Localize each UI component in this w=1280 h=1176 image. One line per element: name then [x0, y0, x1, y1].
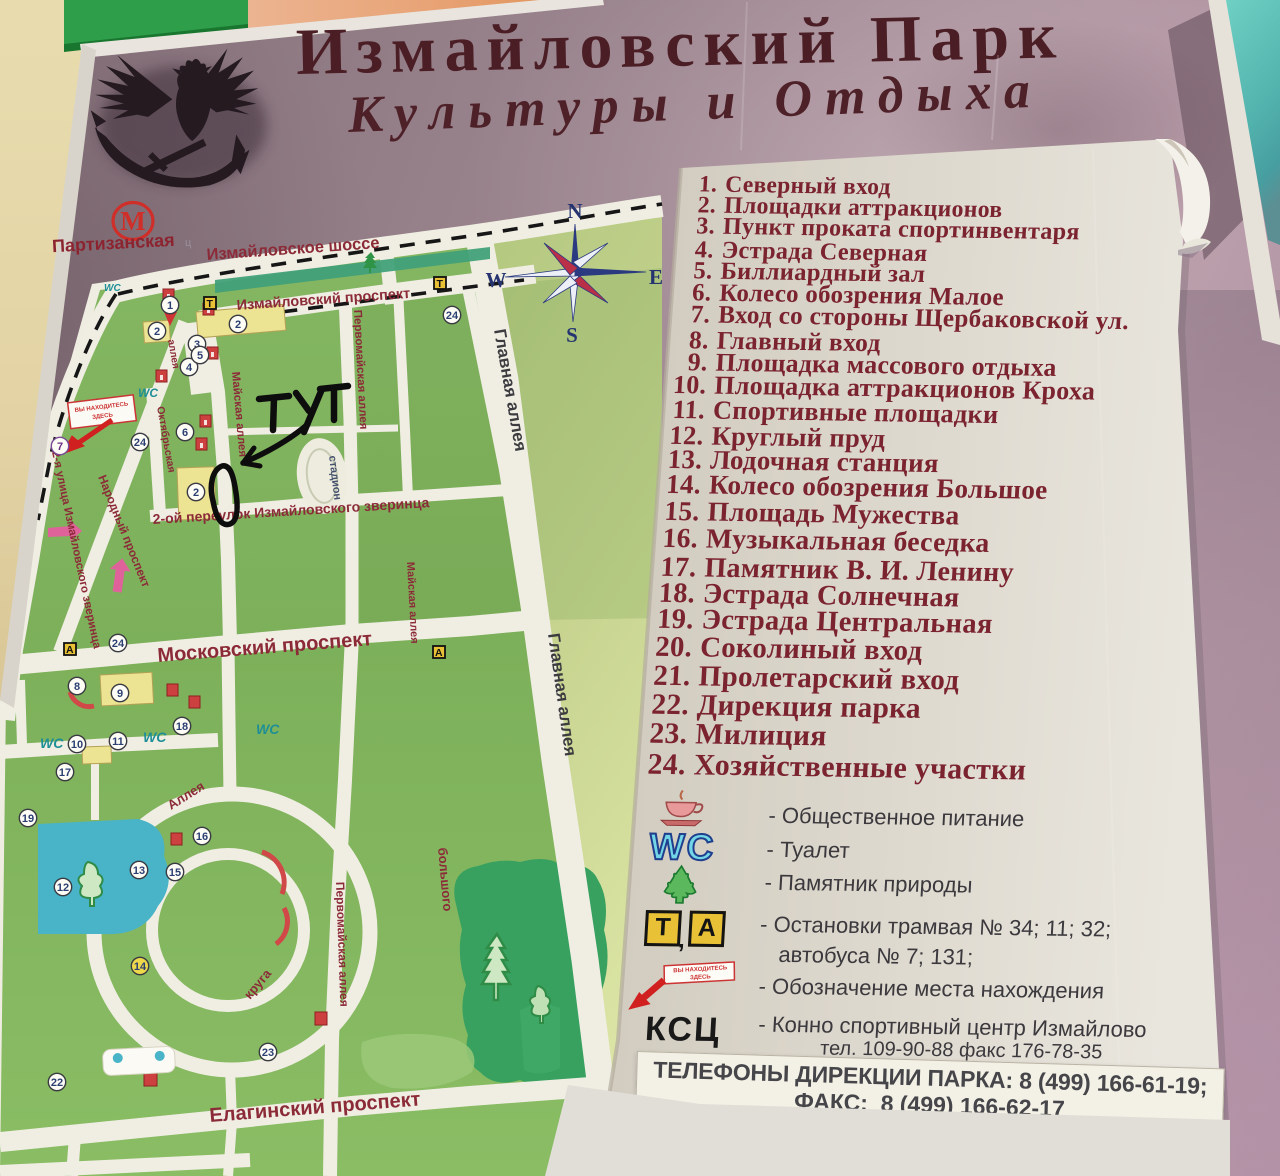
svg-text:E: E: [649, 265, 663, 289]
svg-text:W: W: [486, 268, 507, 292]
svg-text:S: S: [566, 323, 578, 347]
svg-text:N: N: [567, 199, 582, 223]
